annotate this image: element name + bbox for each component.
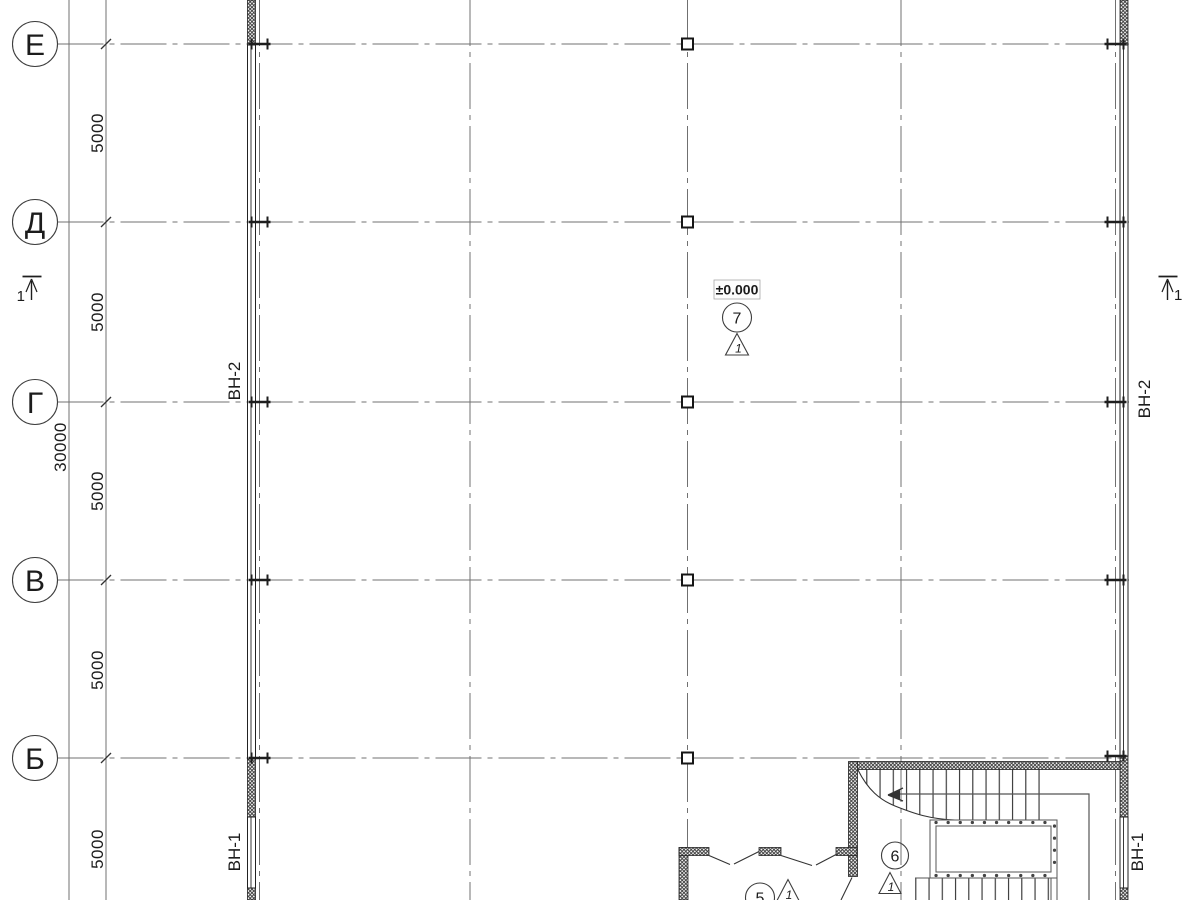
wall-tag-vn2-right: ВН-2	[1135, 380, 1154, 419]
dimension-labels: 5000 5000 5000 5000 5000 30000	[51, 113, 107, 869]
axis-bubble-d: Д	[13, 200, 58, 245]
left-exterior-wall	[248, 0, 256, 900]
node-marker-label: 6	[891, 849, 900, 866]
detail-triangle-label: 1	[735, 342, 742, 356]
axis-bubble-e: Е	[13, 22, 58, 67]
total-dim-label: 30000	[51, 422, 70, 472]
bottom-partition-wall	[679, 848, 857, 900]
axis-bubble-label: Б	[25, 743, 45, 776]
wall-tag-vn2-left: ВН-2	[225, 362, 244, 401]
node-marker-6: 6 1	[879, 842, 909, 894]
axis-bubble-label: Г	[27, 387, 43, 420]
bay-dim-label: 5000	[88, 292, 107, 332]
axis-bubble-label: Е	[25, 29, 45, 62]
node-marker-5: 5 1	[746, 880, 800, 900]
axis-bubble-b: Б	[13, 736, 58, 781]
stair-top-wall	[851, 762, 1120, 770]
bay-dim-label: 5000	[88, 829, 107, 869]
node-marker-label: 5	[756, 891, 765, 900]
right-exterior-wall	[1120, 0, 1128, 900]
detail-triangle-label: 1	[786, 888, 793, 900]
axis-bubble-g: Г	[13, 380, 58, 425]
floor-plan-canvas: 5000 5000 5000 5000 5000 30000 Е Д Г В Б	[0, 0, 1200, 900]
bay-dim-label: 5000	[88, 471, 107, 511]
stair-lower-flight	[915, 878, 1051, 900]
axis-bubble-label: В	[25, 565, 45, 598]
section-mark-right: 1	[1159, 277, 1183, 305]
section-mark-left: 1	[17, 277, 42, 306]
node-marker-label: 7	[733, 311, 742, 328]
axis-bubble-label: Д	[25, 207, 45, 240]
section-mark-label: 1	[17, 288, 25, 305]
axis-bubbles: Е Д Г В Б	[13, 22, 58, 781]
floor-plan-page: 5000 5000 5000 5000 5000 30000 Е Д Г В Б	[0, 0, 1200, 900]
axis-bubble-v: В	[13, 558, 58, 603]
stair-door-leaf	[841, 878, 852, 900]
stair-left-wall	[849, 762, 858, 877]
stairwell	[841, 762, 1120, 900]
detail-triangle-label: 1	[888, 880, 895, 894]
wall-tag-vn1-right: ВН-1	[1128, 833, 1147, 872]
section-mark-label: 1	[1174, 287, 1182, 304]
level-mark-value: ±0.000	[716, 282, 759, 298]
wall-tag-vn1-left: ВН-1	[225, 833, 244, 872]
node-marker-7: 7 1	[723, 303, 752, 356]
bay-dim-label: 5000	[88, 113, 107, 153]
stair-upper-flight	[858, 766, 1051, 820]
level-mark: ±0.000	[714, 280, 760, 299]
bay-dim-label: 5000	[88, 650, 107, 690]
